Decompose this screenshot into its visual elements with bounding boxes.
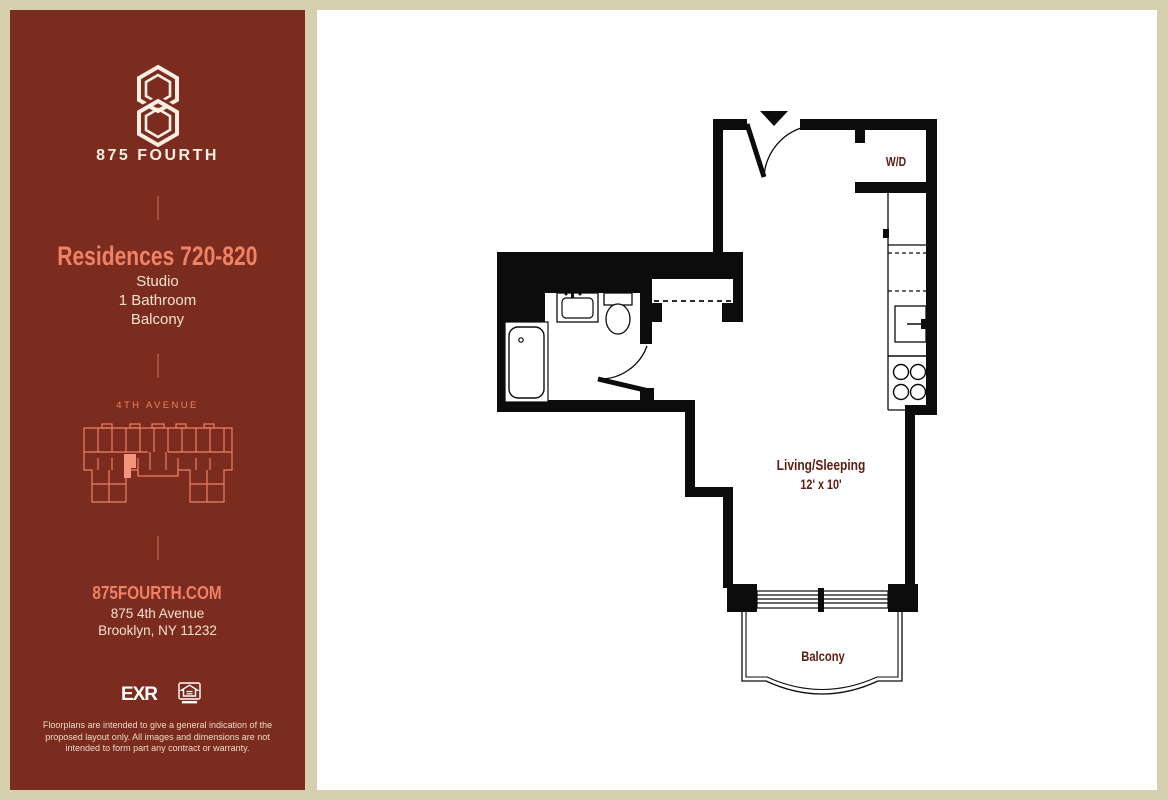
divider-tick	[157, 196, 159, 220]
fridge-handle	[883, 229, 889, 238]
sliding-door	[757, 588, 888, 612]
equal-housing-icon	[178, 682, 201, 705]
balcony	[742, 588, 902, 694]
residence-specs: Studio 1 Bathroom Balcony	[10, 272, 305, 329]
disclaimer-text: Floorplans are intended to give a genera…	[33, 720, 283, 755]
svg-text:EXR: EXR	[121, 684, 158, 705]
balcony-label: Balcony	[801, 649, 845, 664]
address-line2: Brooklyn, NY 11232	[10, 622, 305, 639]
kitchen	[883, 193, 927, 410]
address-block: 875 4th Avenue Brooklyn, NY 11232	[10, 605, 305, 639]
spec-outdoor: Balcony	[10, 310, 305, 329]
bathroom-door	[598, 346, 649, 391]
kitchen-sink	[895, 306, 927, 342]
building-keyplan	[78, 414, 238, 506]
address-line1: 875 4th Avenue	[10, 605, 305, 622]
highlighted-unit	[124, 454, 136, 478]
wd-label: W/D	[886, 155, 906, 169]
keyplan-street-label: 4TH AVENUE	[10, 400, 305, 411]
website-url: 875FOURTH.COM	[10, 583, 305, 604]
brand-logo-icon	[123, 64, 193, 148]
residence-title: Residences 720-820	[10, 241, 305, 272]
brand-wordmark: 875 FOURTH	[10, 147, 305, 165]
spec-unit-type: Studio	[10, 272, 305, 291]
plan-walls	[497, 119, 937, 612]
stove-burners	[888, 356, 926, 400]
living-label: Living/Sleeping	[777, 457, 866, 474]
divider-tick	[157, 536, 159, 560]
flyer-page: { "sidebar": { "brand": { "wordmark": "8…	[0, 0, 1168, 800]
spec-bathrooms: 1 Bathroom	[10, 291, 305, 310]
bathtub	[505, 322, 548, 402]
floorplan-drawing: W/D Living/Sleeping 12' x 10' Balcony	[490, 100, 945, 710]
entry-door	[747, 111, 801, 177]
entry-marker-icon	[760, 111, 788, 126]
living-dimensions: 12' x 10'	[800, 477, 841, 492]
exr-logo: EXR	[114, 683, 164, 705]
divider-tick	[157, 354, 159, 378]
toilet	[604, 293, 632, 334]
sidebar: 875 FOURTH Residences 720-820 Studio 1 B…	[10, 10, 305, 790]
bathroom-sink	[557, 292, 598, 322]
logo-row: EXR	[10, 682, 305, 705]
